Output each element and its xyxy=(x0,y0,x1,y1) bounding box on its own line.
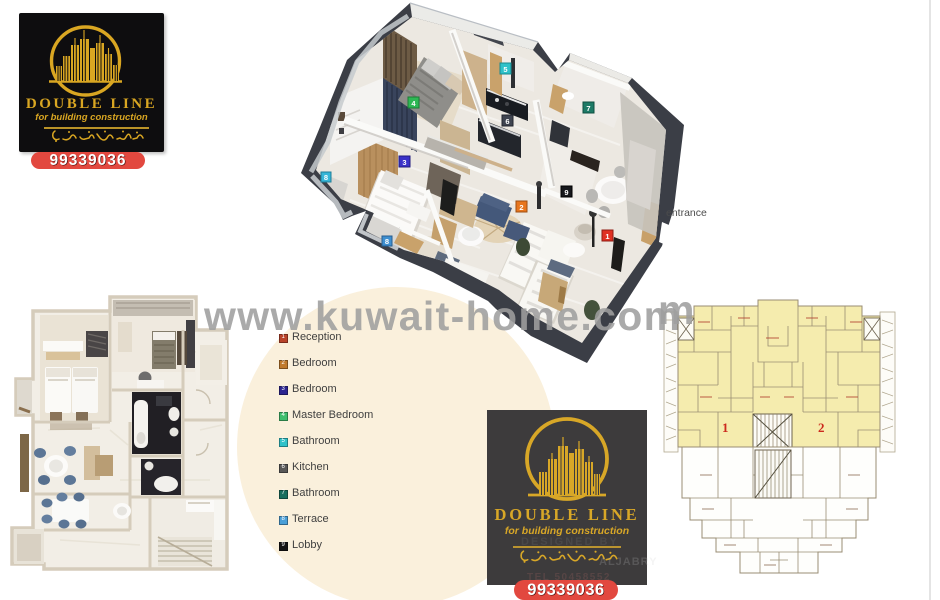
svg-text:8: 8 xyxy=(324,173,328,182)
svg-text:7: 7 xyxy=(586,104,590,113)
svg-text:2: 2 xyxy=(818,420,825,435)
svg-text:entrance: entrance xyxy=(666,207,707,219)
svg-text:6: 6 xyxy=(505,117,509,126)
svg-text:1: 1 xyxy=(722,420,729,435)
svg-text:8: 8 xyxy=(385,237,389,246)
svg-text:3: 3 xyxy=(402,158,406,167)
svg-text:2: 2 xyxy=(519,203,523,212)
svg-text:5: 5 xyxy=(503,65,507,74)
svg-text:9: 9 xyxy=(564,188,568,197)
svg-text:1: 1 xyxy=(605,232,609,241)
